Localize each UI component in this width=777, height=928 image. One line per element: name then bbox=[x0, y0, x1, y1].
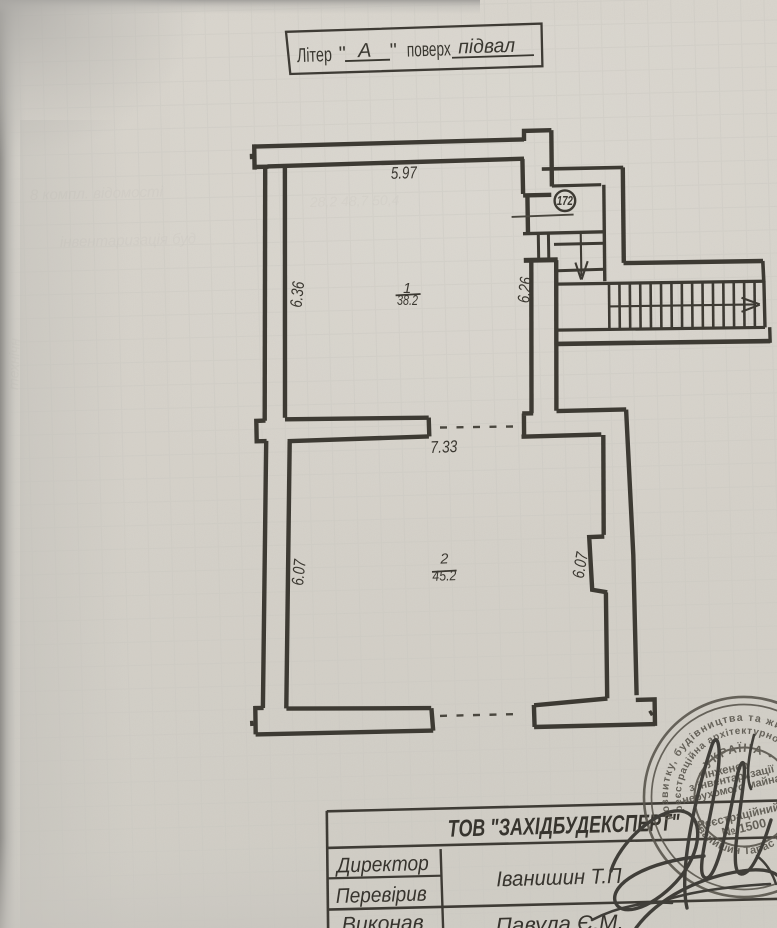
svg-text:": " bbox=[389, 40, 397, 62]
svg-text:28,2 48,7 50,4: 28,2 48,7 50,4 bbox=[309, 192, 400, 210]
svg-text:Директор: Директор bbox=[335, 852, 429, 878]
svg-text:Літер: Літер bbox=[297, 44, 333, 67]
svg-text:7.33: 7.33 bbox=[430, 437, 458, 457]
svg-text:підвал: підвал bbox=[458, 35, 516, 59]
svg-text:6.26: 6.26 bbox=[514, 276, 536, 304]
svg-text:Іванишин Т.П.: Іванишин Т.П. bbox=[496, 864, 628, 892]
svg-text:технічн: технічн bbox=[5, 338, 23, 390]
svg-text:6.07: 6.07 bbox=[288, 558, 310, 586]
svg-text:45.2: 45.2 bbox=[432, 568, 457, 585]
svg-text:інвентаризація буд: інвентаризація буд bbox=[60, 230, 197, 251]
svg-text:38.2: 38.2 bbox=[397, 293, 418, 309]
svg-text:172: 172 bbox=[557, 194, 573, 208]
svg-text:6.36: 6.36 bbox=[287, 280, 309, 308]
svg-text:5.97: 5.97 bbox=[391, 163, 418, 183]
svg-text:Перевірив: Перевірив bbox=[335, 882, 427, 908]
svg-text:8 компл. відомості: 8 компл. відомості bbox=[30, 184, 164, 204]
svg-text:Виконав: Виконав bbox=[341, 911, 424, 928]
svg-text:поверх: поверх bbox=[406, 38, 451, 61]
svg-text:А: А bbox=[357, 40, 372, 62]
svg-text:2: 2 bbox=[439, 551, 449, 567]
